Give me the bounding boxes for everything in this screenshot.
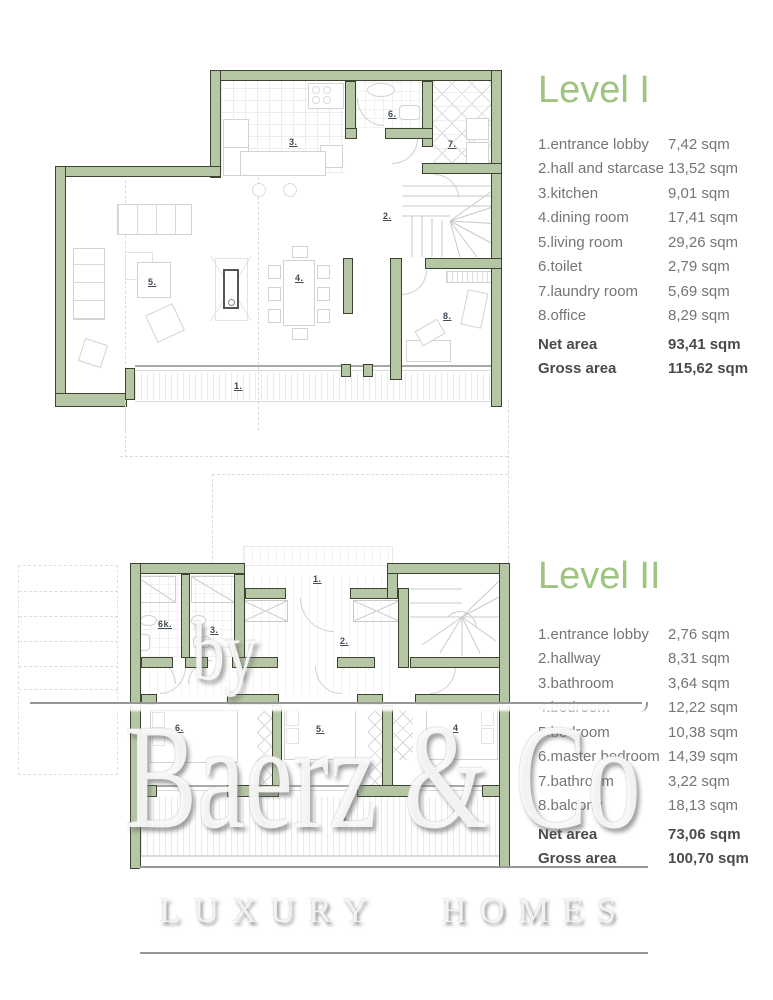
- room-name: 1.entrance lobby: [538, 626, 668, 643]
- room-area: 18,13 sqm: [668, 797, 738, 814]
- legend-row: 1.entrance lobby7,42 sqm: [538, 132, 773, 157]
- door-arc: [402, 270, 427, 295]
- room-area: 3,22 sqm: [668, 773, 730, 790]
- wall-segment: [491, 70, 502, 407]
- construction-line: [19, 641, 118, 642]
- room-area: 7,42 sqm: [668, 136, 730, 153]
- wall-segment: [210, 70, 502, 81]
- wall-segment: [345, 128, 357, 139]
- wall-segment: [141, 657, 173, 668]
- room-area: 10,38 sqm: [668, 724, 738, 741]
- wall-segment: [425, 258, 502, 269]
- wall-segment: [345, 81, 356, 133]
- room-area: 5,69 sqm: [668, 283, 730, 300]
- door-arc: [430, 666, 456, 694]
- wall-segment: [210, 70, 221, 178]
- legend-row: 8.office8,29 sqm: [538, 304, 773, 329]
- room-area: 13,52 sqm: [668, 160, 738, 177]
- wall-pillar: [343, 258, 353, 314]
- watermark-by: by: [192, 610, 258, 694]
- wall-segment: [55, 166, 221, 177]
- kitchen-counter: [223, 119, 249, 148]
- legend-row: 6.toilet2,79 sqm: [538, 255, 773, 280]
- room-area: 29,26 sqm: [668, 234, 738, 251]
- watermark-brand: Baerz & Co: [125, 702, 641, 852]
- sofa: [117, 204, 192, 235]
- chair: [317, 309, 330, 323]
- chair: [317, 287, 330, 301]
- legend-row: 1.entrance lobby2,76 sqm: [538, 622, 773, 647]
- wall-segment: [385, 128, 433, 139]
- chair: [292, 246, 308, 258]
- chair: [268, 309, 281, 323]
- total-area: 100,70 sqm: [668, 850, 749, 867]
- room-area: 8,29 sqm: [668, 307, 730, 324]
- chair: [268, 287, 281, 301]
- desk: [406, 340, 451, 362]
- level1-floorplan: 1. 2. 3. 4. 5. 6. 7. 8.: [40, 62, 510, 462]
- total-name: Net area: [538, 336, 668, 353]
- staircase-drawing: [410, 575, 499, 656]
- wall-segment: [387, 563, 510, 574]
- level1-title: Level I: [538, 68, 773, 112]
- legend-row: 3.bathroom3,64 sqm: [538, 671, 773, 696]
- room-label-entrance: 1.: [234, 382, 243, 391]
- room-area: 9,01 sqm: [668, 185, 730, 202]
- wall-segment: [130, 563, 245, 574]
- wall-segment: [125, 368, 135, 400]
- room-area: 17,41 sqm: [668, 209, 738, 226]
- room-label-hallway: 2.: [340, 637, 349, 646]
- watermark-line: [140, 866, 648, 873]
- burner-icon: [323, 86, 331, 94]
- burner-icon: [323, 96, 331, 104]
- shower: [136, 576, 176, 603]
- pendant-lamp-icon: [283, 183, 297, 197]
- construction-line: [19, 666, 118, 667]
- wall-segment: [181, 574, 190, 658]
- room-name: 6.toilet: [538, 258, 668, 275]
- net-area-row: Net area93,41 sqm: [538, 332, 773, 357]
- construction-line: [508, 400, 509, 564]
- lounge-chair: [460, 289, 488, 329]
- construction-line: [120, 456, 508, 457]
- room-name: 7.laundry room: [538, 283, 668, 300]
- room-name: 8.office: [538, 307, 668, 324]
- construction-line: [125, 400, 126, 458]
- dining-table: [283, 260, 315, 326]
- level1-room-list: 1.entrance lobby7,42 sqm 2.hall and star…: [538, 132, 773, 381]
- room-name: 5.living room: [538, 234, 668, 251]
- room-area: 14,39 sqm: [668, 748, 738, 765]
- construction-line: [19, 689, 118, 690]
- wall-segment: [390, 258, 402, 380]
- wall-segment: [398, 588, 409, 668]
- fireplace-dot-icon: [228, 299, 235, 306]
- chair: [268, 265, 281, 279]
- wall-segment: [55, 393, 127, 407]
- construction-line: [212, 474, 508, 475]
- neighbor-outline: [18, 565, 118, 775]
- room-name: 3.kitchen: [538, 185, 668, 202]
- washer: [466, 118, 489, 140]
- bathroom-sink: [367, 83, 395, 97]
- room-label-dining: 4.: [295, 274, 304, 283]
- room-area: 3,64 sqm: [668, 675, 730, 692]
- wall-segment: [55, 166, 66, 407]
- window-line: [135, 370, 502, 371]
- room-name: 3.bathroom: [538, 675, 668, 692]
- room-label-hall: 2.: [383, 212, 392, 221]
- kitchen-island: [240, 151, 326, 176]
- dryer: [466, 142, 489, 164]
- legend-row: 4.dining room17,41 sqm: [538, 206, 773, 231]
- wardrobe: [353, 600, 400, 622]
- total-name: Gross area: [538, 360, 668, 377]
- watermark-tagline: LUXURY HOMES: [140, 893, 648, 928]
- armchair: [145, 303, 185, 343]
- pendant-lamp-icon: [252, 183, 266, 197]
- floorplan-sheet: 1. 2. 3. 4. 5. 6. 7. 8.: [0, 0, 773, 1000]
- wall-segment: [410, 657, 500, 668]
- room-label-office: 8.: [443, 312, 452, 321]
- room-label-laundry: 7.: [448, 140, 457, 149]
- construction-line: [19, 591, 118, 592]
- room-label-toilet: 6.: [388, 110, 397, 119]
- shower: [191, 576, 235, 603]
- room-name: 2.hallway: [538, 650, 668, 667]
- room-name: 4.dining room: [538, 209, 668, 226]
- sofa: [73, 248, 105, 320]
- window-line: [135, 365, 502, 367]
- chair: [317, 265, 330, 279]
- door-arc: [392, 139, 418, 164]
- watermark-line: [140, 952, 648, 959]
- total-area: 73,06 sqm: [668, 826, 741, 843]
- legend-row: 5.living room29,26 sqm: [538, 230, 773, 255]
- room-label-entrance: 1.: [313, 575, 322, 584]
- armchair: [78, 338, 108, 368]
- room-name: 2.hall and starcase: [538, 160, 668, 177]
- room-area: 8,31 sqm: [668, 650, 730, 667]
- level1-legend: Level I 1.entrance lobby7,42 sqm 2.hall …: [538, 68, 773, 381]
- bathroom-sink: [140, 615, 157, 626]
- shelf: [446, 271, 497, 283]
- wall-segment: [422, 163, 502, 174]
- construction-line: [19, 616, 118, 617]
- toilet-fixture: [399, 105, 420, 120]
- gross-area-row: Gross area115,62 sqm: [538, 357, 773, 382]
- room-name: 1.entrance lobby: [538, 136, 668, 153]
- room-area: 2,76 sqm: [668, 626, 730, 643]
- wall-stub: [363, 364, 373, 377]
- legend-row: 2.hall and starcase13,52 sqm: [538, 157, 773, 182]
- legend-row: 2.hallway8,31 sqm: [538, 647, 773, 672]
- legend-row: 3.kitchen9,01 sqm: [538, 181, 773, 206]
- legend-row: 7.laundry room5,69 sqm: [538, 279, 773, 304]
- room-label-kitchen: 3.: [289, 138, 298, 147]
- construction-line: [212, 474, 213, 564]
- wall-segment: [337, 657, 375, 668]
- total-area: 115,62 sqm: [668, 360, 748, 377]
- wall-segment: [245, 588, 286, 599]
- burner-icon: [312, 86, 320, 94]
- room-area: 12,22 sqm: [668, 699, 738, 716]
- wall-stub: [341, 364, 351, 377]
- room-area: 2,79 sqm: [668, 258, 730, 275]
- terrace-decking: [135, 373, 502, 400]
- terrace-edge: [135, 401, 502, 402]
- room-label-bathroom-6k: 6k.: [158, 620, 172, 629]
- chair: [292, 328, 308, 340]
- room-label-living: 5.: [148, 278, 157, 287]
- level2-title: Level II: [538, 554, 773, 598]
- total-area: 93,41 sqm: [668, 336, 741, 353]
- burner-icon: [312, 96, 320, 104]
